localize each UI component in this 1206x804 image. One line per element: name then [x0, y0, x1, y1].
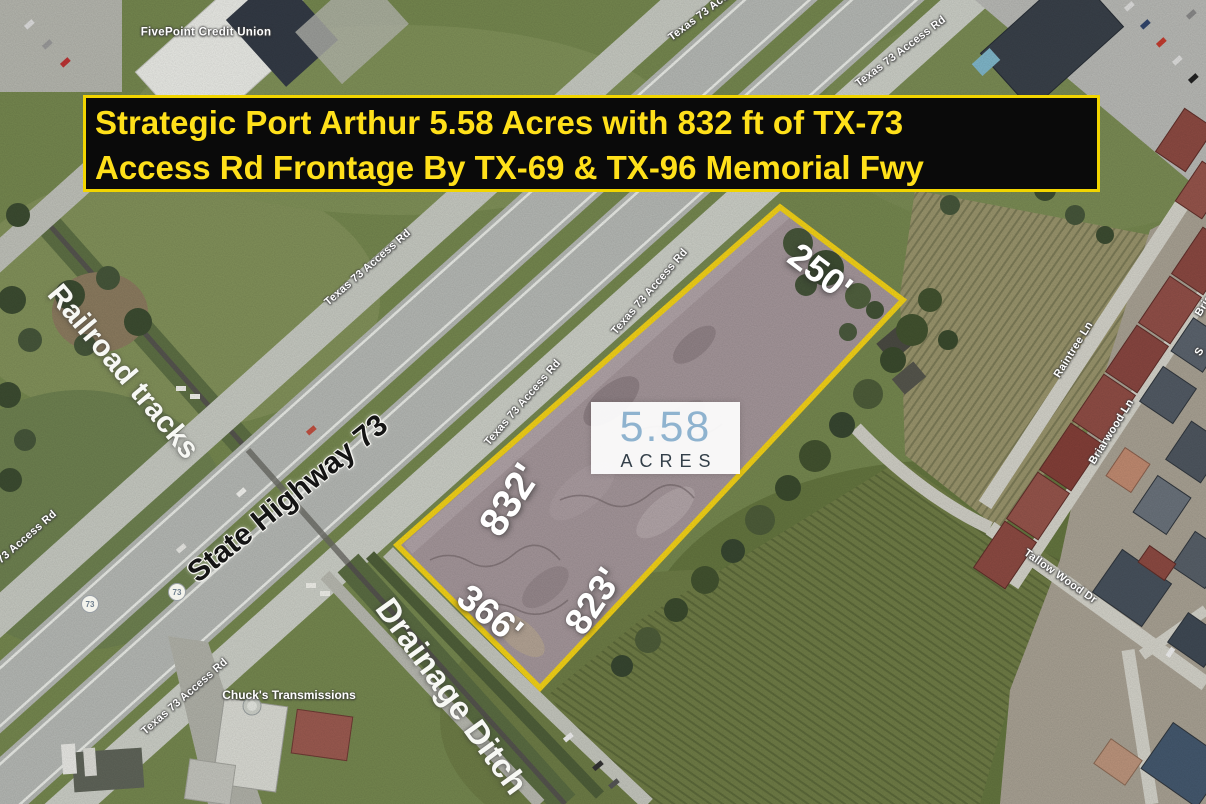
- label-texas73-access-rd-4: Texas 73 Access Rd: [140, 657, 230, 737]
- aerial-listing-photo: FivePoint Credit UnionTexas 73 Access Rd…: [0, 0, 1206, 804]
- label-street-partial-s: S: [1193, 346, 1206, 358]
- label-dimension-366: 366': [451, 578, 529, 651]
- label-raintree-ln: Raintree Ln: [1052, 320, 1095, 380]
- label-texas73-access-rd-6: Texas 73 Access Rd: [667, 0, 761, 43]
- label-dimension-250: 250': [782, 237, 858, 307]
- acreage-value: 5.58: [620, 406, 712, 449]
- label-tallow-wood-dr: Tallow Wood Dr: [1022, 548, 1099, 607]
- headline-line2: Access Rd Frontage By TX-69 & TX-96 Memo…: [95, 145, 1097, 190]
- label-texas73-access-rd-2: Texas 73 Access Rd: [483, 358, 563, 448]
- label-chucks-transmissions: Chuck's Transmissions: [222, 689, 356, 701]
- label-texas73-access-rd-3: Texas 73 Access Rd: [610, 247, 690, 337]
- route-shield-73-a: 73: [81, 595, 99, 613]
- route-shield-73-b: 73: [168, 583, 186, 601]
- headline-line1: Strategic Port Arthur 5.58 Acres with 83…: [95, 100, 1097, 145]
- label-dimension-832: 832': [472, 457, 547, 543]
- label-fivepoint-credit-union: FivePoint Credit Union: [141, 27, 272, 39]
- headline-banner: Strategic Port Arthur 5.58 Acres with 83…: [83, 95, 1100, 192]
- label-state-highway-73: State Highway 73: [183, 410, 394, 589]
- label-dimension-823: 823': [558, 561, 628, 640]
- label-briarwood-ln-partial: Briarwood Ln: [1194, 249, 1206, 318]
- label-texas73-access-rd-5: Texas 73 Access Rd: [0, 509, 59, 589]
- label-texas73-access-rd-7: Texas 73 Access Rd: [854, 15, 948, 90]
- label-briarwood-ln: Briarwood Ln: [1088, 397, 1137, 466]
- acreage-badge: 5.58 ACRES: [591, 402, 740, 474]
- label-railroad-tracks: Railroad tracks: [42, 279, 204, 464]
- label-texas73-access-rd-1: Texas 73 Access Rd: [323, 228, 413, 308]
- acreage-unit: ACRES: [613, 452, 717, 470]
